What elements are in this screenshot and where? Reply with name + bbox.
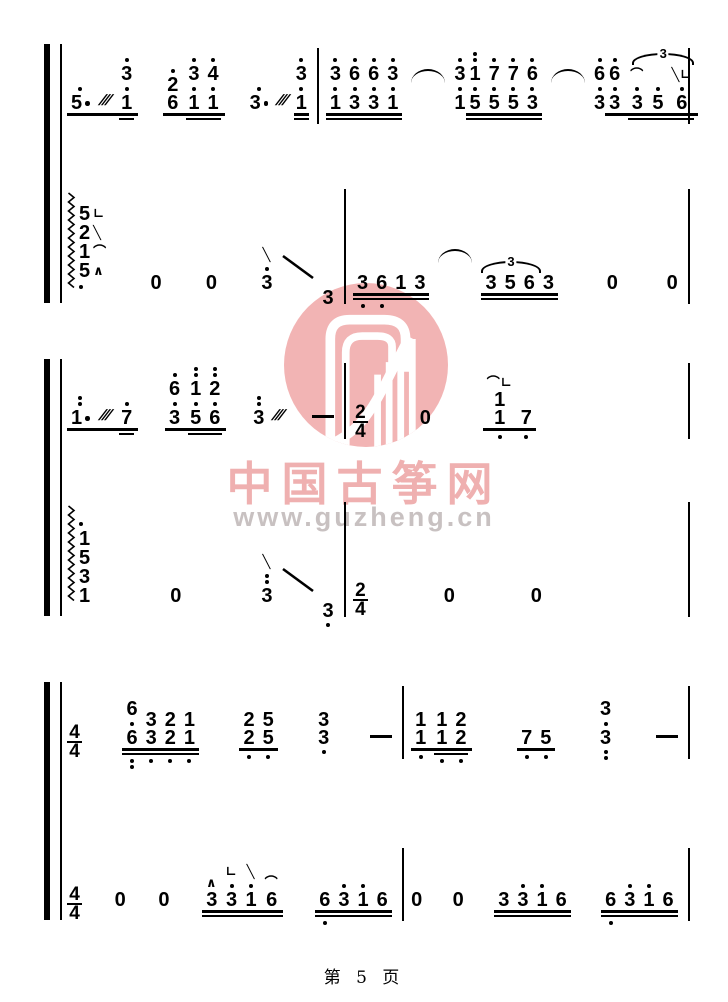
pitch-stack: 11: [494, 393, 505, 426]
octave-dot-above: [492, 87, 496, 91]
octave-dots-below: [168, 759, 172, 763]
octave-dot-above: [391, 87, 395, 91]
pitch-stack: 75: [489, 56, 500, 111]
note-digit: 5: [508, 96, 519, 111]
digit-row: 0: [411, 893, 422, 908]
note-digit: 3: [253, 411, 264, 426]
note-digit: 6: [663, 893, 674, 908]
spacer: [588, 425, 678, 426]
digit-row: 6: [594, 67, 605, 82]
pitch-stack: 0: [150, 276, 161, 291]
digit-row: 3: [338, 893, 349, 908]
note: 3: [624, 882, 635, 908]
note-cluster: ╲33: [261, 248, 333, 291]
octave-dot-below: [322, 750, 326, 754]
note-digit: 3: [600, 731, 611, 746]
octave-dot-above: [125, 87, 129, 91]
digit-row: 6: [167, 96, 178, 111]
digit-row: 6: [266, 893, 277, 908]
digit-row: 0: [607, 276, 618, 291]
octave-dot-below: [168, 759, 172, 763]
note-digit: 3: [206, 893, 217, 908]
digit-row: 1: [357, 893, 368, 908]
note-digit: 1: [387, 96, 398, 111]
pitch-stack: 63: [594, 56, 605, 111]
note-digit: 3: [632, 96, 643, 111]
octave-dot-above: [530, 58, 534, 62]
octave-dot-below: [544, 755, 548, 759]
note: 3: [543, 276, 554, 291]
pitch-stack: 7: [521, 411, 532, 426]
digit-row: 6: [126, 731, 137, 746]
pitch-stack: 22: [455, 713, 466, 746]
digit-row: 1: [79, 532, 90, 547]
note-digit: 1: [79, 245, 90, 260]
note-digit: 3: [318, 731, 329, 746]
bass-line: 15310╲332400: [60, 504, 690, 604]
digit-row: 3: [498, 893, 509, 908]
note: 5: [71, 85, 90, 111]
ornament-mark: ∧: [93, 265, 104, 278]
digit-row: 0: [420, 411, 431, 426]
octave-dot-below: [498, 435, 502, 439]
note-digit: 3: [318, 713, 329, 728]
digit-row: 6: [556, 893, 567, 908]
tremolo-mark: ///: [269, 409, 287, 423]
pitch-stack: 3: [338, 882, 349, 908]
note: ∧3: [206, 876, 218, 908]
pitch-stack: 3: [485, 276, 496, 291]
note-digit: 6: [126, 702, 137, 717]
digit-row: 0: [158, 893, 169, 908]
pitch-stack: 6: [663, 893, 674, 908]
note-digit: 1: [79, 589, 90, 604]
octave-dot-above: [213, 402, 217, 406]
note-digit: 0: [531, 589, 542, 604]
digit-row: 1: [330, 96, 341, 111]
rest-note: 0: [150, 276, 161, 291]
octave-dots-below: [323, 921, 327, 925]
note-digit: 3: [368, 96, 379, 111]
beam-subgroup: 3141: [186, 56, 220, 111]
digit-row: 3: [188, 67, 199, 82]
note: 3: [323, 604, 334, 619]
note: ╲3: [261, 555, 272, 604]
note-digit: 3: [121, 67, 132, 82]
digit-row: 1: [536, 893, 547, 908]
barline: [688, 686, 690, 759]
note-digit: 3: [226, 893, 237, 908]
octave-dot-above: [333, 58, 337, 62]
note-digit: 1: [536, 893, 547, 908]
digit-row: 5: [505, 276, 516, 291]
note-digit: 4: [207, 67, 218, 82]
octave-dot-above: [342, 884, 346, 888]
octave-dot-below: [149, 759, 153, 763]
pitch-stack: 6: [266, 893, 277, 908]
note-digit: 1: [470, 67, 481, 82]
half-note-dash: [370, 735, 392, 738]
note-digit: 3: [624, 893, 635, 908]
note-digit: 0: [158, 893, 169, 908]
note: 22: [165, 713, 176, 746]
tuplet-number: 3: [505, 255, 516, 268]
note-cluster: 3///: [253, 394, 285, 426]
octave-dot-above: [391, 58, 395, 62]
octave-dots-below: [419, 755, 423, 759]
beam-group: ⌒∟117: [483, 376, 536, 426]
note-digit: 5: [263, 713, 274, 728]
note-digit: 6: [209, 411, 220, 426]
octave-dot-above: [353, 87, 357, 91]
digit-row: 1: [454, 96, 465, 111]
sheet-page: 中国古筝网 www.guzheng.cn 5///312631413///313…: [0, 0, 728, 1002]
note: 11: [415, 713, 426, 746]
note-digit: 1: [188, 96, 199, 111]
melody-line: 1///76315263///240⌒∟117: [60, 365, 690, 426]
rest-note: 0: [453, 893, 464, 908]
system-1: 5///312631413///313163633131157575636363…: [44, 50, 690, 291]
digit-row: 3: [206, 893, 217, 908]
note: 5: [505, 276, 516, 291]
note-digit: 7: [121, 411, 132, 426]
pitch-stack: 3: [624, 882, 635, 908]
note-digit: 6: [266, 893, 277, 908]
pitch-stack: 0: [158, 893, 169, 908]
beam-subgroup: 7: [119, 400, 134, 426]
note-cluster: 1575756363: [466, 50, 606, 111]
digit-row: 1: [494, 393, 505, 408]
digit-row: 3: [323, 291, 334, 306]
page-footer: 第 5 页: [0, 963, 728, 988]
pitch-stack: 0: [531, 589, 542, 604]
note: 3: [250, 85, 269, 111]
pitch-stack: 5: [505, 276, 516, 291]
pitch-stack: 7: [521, 731, 532, 746]
note-digit: 0: [420, 411, 431, 426]
beam-subgroup: 3⌒35╲∟6: [628, 68, 694, 111]
note-digit: 0: [115, 893, 126, 908]
octave-dot-above: [130, 722, 134, 726]
note-digit: 1: [454, 96, 465, 111]
note: 63: [527, 56, 538, 111]
digit-row: 6: [377, 893, 388, 908]
measure: 1///76315263///: [60, 365, 344, 426]
ts-denominator: 4: [355, 424, 366, 439]
ts-numerator: 2: [355, 405, 366, 420]
digit-row: 6: [319, 893, 330, 908]
note-digit: 5: [79, 551, 90, 566]
note-digit: 6: [167, 96, 178, 111]
note: 41: [207, 56, 218, 111]
note-digit: 3: [387, 67, 398, 82]
note: 33: [318, 713, 329, 746]
note-digit: 1: [246, 893, 257, 908]
digit-row: 4: [207, 67, 218, 82]
note: ╲3: [261, 248, 272, 291]
digit-row: 1: [643, 893, 654, 908]
pitch-stack: 11: [415, 713, 426, 746]
pitch-stack: 1: [357, 882, 368, 908]
digit-row: 3: [600, 731, 611, 746]
octave-dot-below: [524, 435, 528, 439]
octave-dots-above: [257, 394, 261, 408]
note: ╲∟6: [671, 68, 692, 111]
note-digit: 3: [250, 96, 261, 111]
octave-dot-above: [613, 87, 617, 91]
pitch-stack: 0: [206, 276, 217, 291]
beam-group: 111122: [411, 713, 472, 746]
octave-dot-above: [213, 367, 217, 371]
digit-row: 0: [170, 589, 181, 604]
augmentation-dot: [264, 101, 269, 106]
octave-dot-above: [265, 574, 269, 578]
note-digit: 1: [415, 713, 426, 728]
digit-row: 6: [524, 276, 535, 291]
page-number: 第 5 页: [324, 968, 405, 988]
note: 6: [663, 893, 674, 908]
system-bracket: [44, 44, 62, 303]
rest-note: 0: [607, 276, 618, 291]
digit-row: 3: [318, 713, 329, 728]
digit-row: 1: [246, 893, 257, 908]
octave-dots-above: [473, 50, 477, 64]
digit-row: 7: [521, 731, 532, 746]
digit-row: 7: [121, 411, 132, 426]
octave-dots-above: [194, 365, 198, 379]
digit-row: 1: [395, 276, 406, 291]
note: 31: [188, 56, 199, 111]
digit-row: 3: [121, 67, 132, 82]
note-digit: 2: [455, 731, 466, 746]
pitch-stack: 1: [395, 276, 406, 291]
note-digit: 6: [377, 893, 388, 908]
digit-row: 3: [632, 96, 643, 111]
note-digit: 6: [609, 67, 620, 82]
pitch-stack: 33: [600, 702, 611, 746]
pitch-stack: 6: [556, 893, 567, 908]
note-digit: 0: [667, 276, 678, 291]
octave-dot-below: [323, 921, 327, 925]
barline: [688, 363, 690, 439]
pitch-stack: 3: [261, 572, 272, 604]
note-digit: 3: [146, 731, 157, 746]
octave-dot-above: [333, 87, 337, 91]
octave-dot-above: [299, 58, 303, 62]
note-digit: 3: [146, 713, 157, 728]
system-2: 1///76315263///240⌒∟11715310╲332400: [44, 365, 690, 604]
octave-dot-above: [647, 884, 651, 888]
ts-denominator: 4: [69, 906, 80, 921]
glissando-line: [281, 567, 315, 598]
note-digit: 5: [652, 96, 663, 111]
digit-row: 3: [414, 276, 425, 291]
measure: 2400: [346, 570, 688, 604]
note-digit: 1: [395, 276, 406, 291]
pitch-stack: 33: [146, 713, 157, 746]
octave-dot-below: [130, 765, 134, 769]
octave-dot-above: [257, 402, 261, 406]
ornament-mark: ╲: [247, 865, 256, 882]
note-digit: 6: [376, 276, 387, 291]
beam-group: 631526: [165, 365, 226, 426]
digit-row: 3: [600, 702, 611, 717]
note: 75: [508, 56, 519, 111]
ts-numerator: 4: [69, 725, 80, 740]
note-digit: 0: [206, 276, 217, 291]
pitch-stack: 6: [376, 276, 387, 291]
pitch-stack: 3: [517, 882, 528, 908]
beam-subgroup: 1526: [188, 365, 222, 426]
octave-dot-above: [249, 884, 253, 888]
note-digit: 6: [169, 382, 180, 397]
octave-dot-above: [521, 884, 525, 888]
pitch-stack: 0: [411, 893, 422, 908]
rest-note: 0: [170, 589, 181, 604]
octave-dot-below: [247, 755, 251, 759]
pitch-stack: 3: [253, 394, 264, 426]
octave-dot-below: [440, 759, 444, 763]
pitch-stack: 31: [188, 56, 199, 111]
pitch-stack: 3: [226, 882, 237, 908]
note-digit: 3: [357, 276, 368, 291]
octave-dot-above: [473, 52, 477, 56]
note: 11: [436, 713, 447, 746]
note-digit: 0: [453, 893, 464, 908]
beam-group: 33563: [481, 276, 558, 291]
measure: 240⌒∟117: [346, 376, 688, 426]
note-digit: 6: [605, 893, 616, 908]
octave-dot-above: [540, 884, 544, 888]
note-cluster: 361333563: [353, 249, 558, 291]
bass-line: 4400∧3∟3╲1⌒663160033166316: [60, 850, 690, 908]
octave-dots-below: [459, 759, 463, 763]
digit-row: 0: [667, 276, 678, 291]
note: 31: [121, 56, 132, 111]
digit-row: 3: [609, 96, 620, 111]
beam-group: 6316: [601, 882, 678, 908]
note: 3: [414, 276, 425, 291]
note-digit: 2: [167, 78, 178, 93]
digit-row: 2: [209, 382, 220, 397]
ts-numerator: 4: [69, 887, 80, 902]
octave-dots-below: [322, 750, 326, 754]
time-signature: 44: [67, 887, 82, 921]
octave-dots-below: [544, 755, 548, 759]
barline: [688, 189, 690, 304]
beam-group: 31636331: [326, 56, 403, 111]
octave-dots-below: [130, 759, 134, 769]
digit-row: 5: [71, 96, 90, 111]
octave-dot-above: [613, 58, 617, 62]
pitch-stack: 63: [349, 56, 360, 111]
octave-dot-above: [265, 580, 269, 584]
octave-dots-above: [78, 394, 82, 408]
note: 15: [190, 365, 201, 426]
pitch-stack: 3: [261, 265, 272, 291]
note-digit: 1: [643, 893, 654, 908]
octave-dot-below: [380, 304, 384, 308]
note-digit: 7: [521, 411, 532, 426]
octave-dots-below: [525, 755, 529, 759]
system-bracket: [44, 359, 62, 616]
note-digit: 3: [188, 67, 199, 82]
digit-row: 3: [261, 276, 272, 291]
note: ⌒3: [630, 68, 644, 111]
octave-dot-above: [171, 69, 175, 73]
note-digit: 1: [330, 96, 341, 111]
note-digit: 1: [357, 893, 368, 908]
digit-row: 2: [243, 731, 254, 746]
octave-dot-above: [598, 87, 602, 91]
note-digit: 0: [411, 893, 422, 908]
note: 6: [376, 276, 387, 291]
octave-dot-above: [680, 87, 684, 91]
tremolo-mark: ///: [96, 409, 114, 423]
note: 55: [263, 713, 274, 746]
pitch-stack: 0: [607, 276, 618, 291]
note-digit: 2: [243, 713, 254, 728]
pitch-stack: 3: [414, 276, 425, 291]
octave-dots-below: [149, 759, 153, 763]
beam-subgroup: 31: [119, 56, 134, 111]
note: 63: [349, 56, 360, 111]
octave-dots-below: [247, 755, 251, 759]
note-digit: 5: [540, 731, 551, 746]
octave-dots-below: [440, 759, 444, 763]
note: 22: [455, 713, 466, 746]
system-3: 446633221122553311112275334400∧3∟3╲1⌒663…: [44, 688, 690, 908]
digit-row: 6: [209, 411, 220, 426]
octave-dots-below: [361, 304, 365, 308]
rest-note: 0: [206, 276, 217, 291]
digit-row: 3: [226, 893, 237, 908]
note: 31: [330, 56, 341, 111]
digit-row: 2: [455, 731, 466, 746]
octave-dot-above: [79, 522, 83, 526]
note-digit: 0: [444, 589, 455, 604]
note: 26: [167, 67, 178, 111]
digit-row: 1: [387, 96, 398, 111]
digit-row: 6: [169, 382, 180, 397]
pitch-stack: 3: [206, 893, 217, 908]
pitch-stack: 0: [170, 589, 181, 604]
digit-row: 1: [184, 731, 195, 746]
octave-dot-above: [213, 373, 217, 377]
note-digit: 5: [505, 276, 516, 291]
measure: 4400∧3∟3╲1⌒66316: [60, 865, 402, 908]
octave-dot-above: [194, 402, 198, 406]
digit-row: 3: [330, 67, 341, 82]
pitch-stack: 3: [498, 893, 509, 908]
pitch-stack: 6: [605, 893, 616, 908]
octave-dot-above: [530, 87, 534, 91]
pitch-stack: 1: [643, 882, 654, 908]
note-digit: 3: [609, 96, 620, 111]
digit-row: 1: [71, 411, 90, 426]
digit-row: 3: [624, 893, 635, 908]
octave-dot-above: [257, 396, 261, 400]
beam-group: 2255: [239, 713, 277, 746]
digit-row: 3: [543, 276, 554, 291]
digit-row: 0: [531, 589, 542, 604]
note-digit: 1: [415, 731, 426, 746]
measure: 0033166316: [404, 882, 688, 908]
digit-row: 3: [527, 96, 538, 111]
digit-row: 2: [165, 731, 176, 746]
digit-row: 1: [415, 731, 426, 746]
digit-row: 6: [527, 67, 538, 82]
